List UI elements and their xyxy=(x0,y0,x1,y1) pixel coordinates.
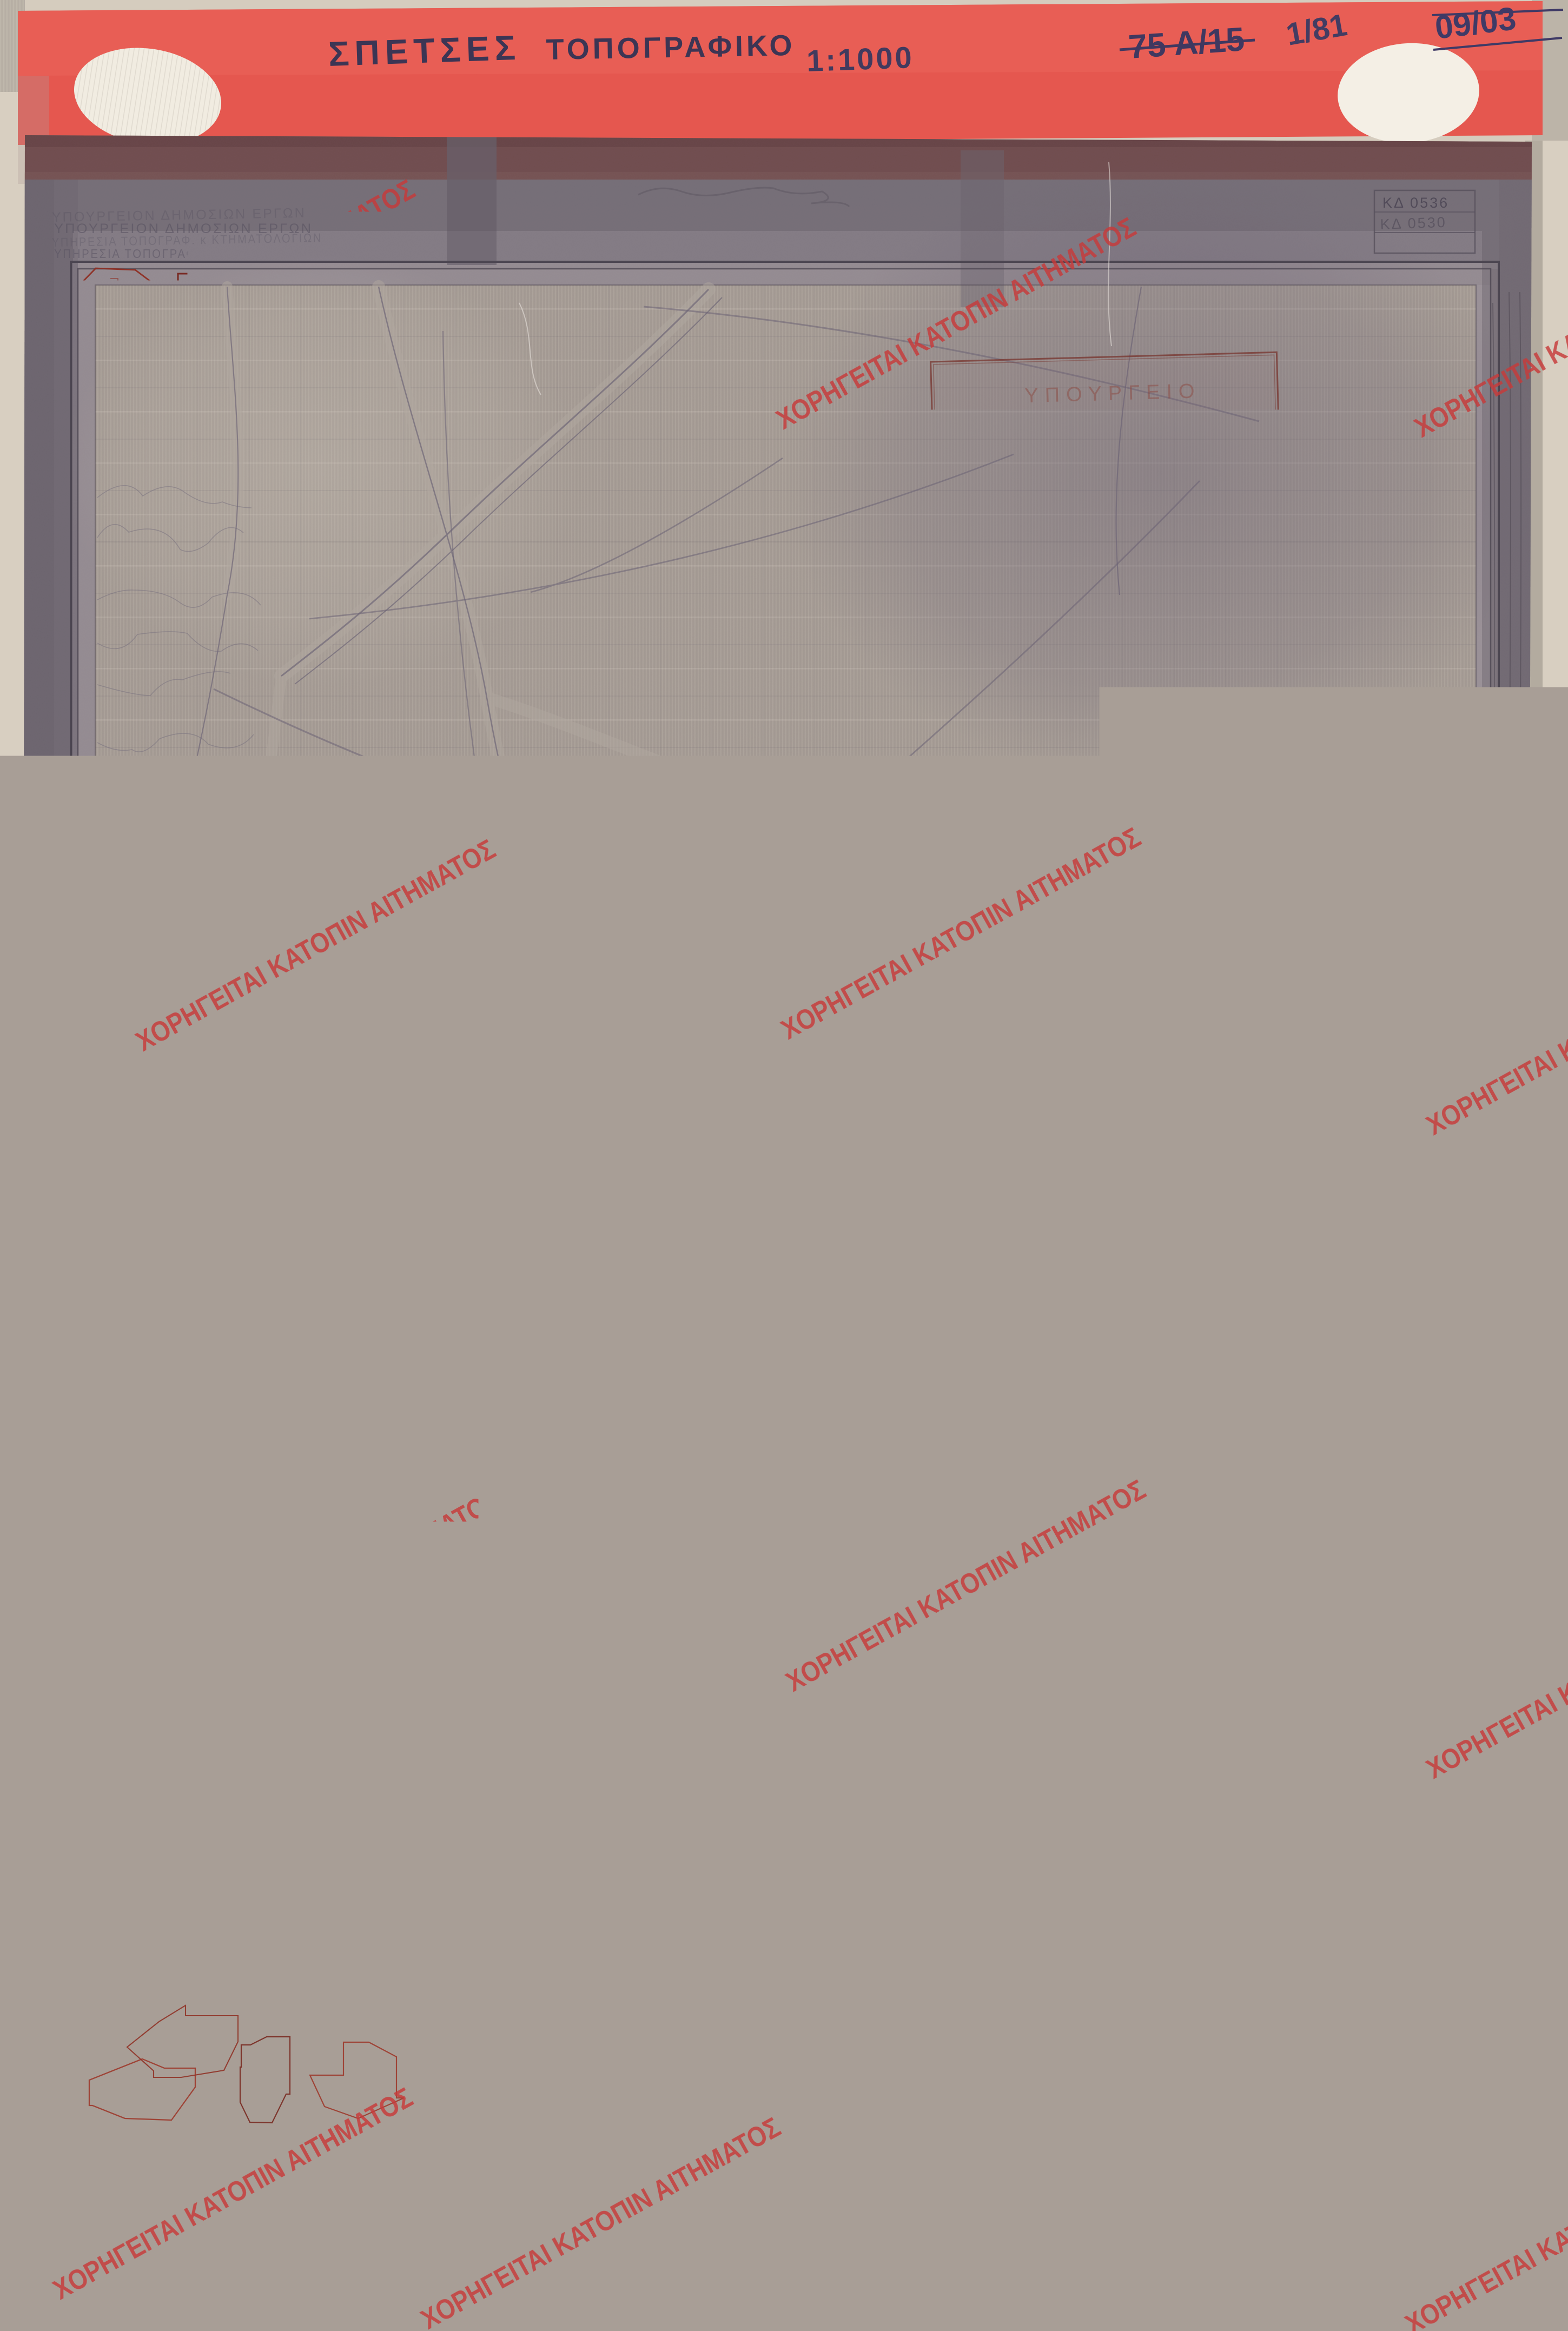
svg-text:ΠΑΝΑΓ.: ΠΑΝΑΓ. xyxy=(1147,1555,1177,1564)
svg-text:281: 281 xyxy=(428,1758,467,1785)
svg-text:285: 285 xyxy=(379,1876,418,1904)
svg-text:1: 1 xyxy=(1200,700,1209,719)
svg-text:295: 295 xyxy=(1390,1716,1430,1744)
svg-text:ΤΟΠΟΓΡΑΦΙΚΟΣ ΧΑΡΤΗΣ: ΤΟΠΟΓΡΑΦΙΚΟΣ ΧΑΡΤΗΣ xyxy=(1160,2164,1512,2188)
svg-text:287: 287 xyxy=(522,2025,562,2054)
svg-text:298: 298 xyxy=(1185,1850,1225,1878)
svg-text:ΑΓ. ΑΝΔΡΕΑΣ: ΑΓ. ΑΝΔΡΕΑΣ xyxy=(108,1190,184,1202)
svg-text:252: 252 xyxy=(420,1195,460,1224)
svg-text:245: 245 xyxy=(447,1084,486,1111)
svg-text:ΑΘΗΝΑ: ΑΘΗΝΑ xyxy=(970,574,1034,592)
svg-text:215: 215 xyxy=(173,389,213,418)
svg-text:228: 228 xyxy=(312,837,352,865)
svg-text:351800: 351800 xyxy=(80,2161,111,2171)
svg-text:288: 288 xyxy=(635,2008,675,2036)
svg-text:222: 222 xyxy=(759,512,800,541)
svg-text:ΑΓ. ΕΛΕΥΘΕΡΙΟΣ: ΑΓ. ΕΛΕΥΘΕΡΙΟΣ xyxy=(1297,2042,1374,2051)
svg-text:241: 241 xyxy=(680,1020,719,1048)
svg-text:301: 301 xyxy=(825,2037,865,2066)
svg-text:253: 253 xyxy=(370,1401,410,1430)
svg-text:αναθεωρη-: αναθεωρη- xyxy=(1134,461,1213,481)
svg-text:273: 273 xyxy=(609,1651,647,1677)
svg-text:296: 296 xyxy=(1387,1811,1428,1840)
svg-text:235: 235 xyxy=(1295,918,1335,947)
svg-text:300: 300 xyxy=(912,1954,951,1982)
svg-text:210: 210 xyxy=(583,311,623,339)
svg-text:180: 180 xyxy=(114,955,153,981)
svg-text:254: 254 xyxy=(559,1317,598,1344)
svg-text:ΤΗΝ: ΤΗΝ xyxy=(984,751,1012,766)
svg-text:ΑΓ.: ΑΓ. xyxy=(841,884,854,895)
svg-text:237: 237 xyxy=(1221,985,1260,1012)
svg-text:303: 303 xyxy=(1092,1964,1132,1992)
svg-text:286: 286 xyxy=(448,1934,487,1962)
svg-text:291: 291 xyxy=(755,1758,795,1786)
svg-text:266: 266 xyxy=(1114,1426,1153,1452)
svg-text:255: 255 xyxy=(698,1182,737,1208)
svg-text:ΕΚΤΕΛΕΣΘ 1972: ΕΚΤΕΛΕΣΘ 1972 xyxy=(1304,2226,1380,2237)
svg-text:Συντεταγμενος συμφωνως: Συντεταγμενος συμφωνως xyxy=(1148,2226,1275,2237)
svg-text:272: 272 xyxy=(779,1626,818,1652)
svg-text:262: 262 xyxy=(1447,1542,1486,1569)
svg-text:214: 214 xyxy=(101,296,140,323)
svg-text:80: 80 xyxy=(1255,675,1273,694)
svg-text:188: 188 xyxy=(109,1754,148,1782)
svg-text:284: 284 xyxy=(342,1923,382,1952)
svg-text:ΚΔ 0536: ΚΔ 0536 xyxy=(1382,195,1449,211)
svg-text:275: 275 xyxy=(298,1543,339,1572)
svg-text:302: 302 xyxy=(978,2035,1017,2061)
svg-text:243: 243 xyxy=(528,1009,567,1037)
svg-text:217: 217 xyxy=(233,498,273,526)
svg-text:227α: 227α xyxy=(244,732,290,759)
svg-text:195: 195 xyxy=(108,1952,148,1980)
svg-text:289: 289 xyxy=(680,1929,720,1958)
svg-text:230: 230 xyxy=(842,855,882,884)
svg-text:259: 259 xyxy=(1342,1231,1381,1259)
svg-text:236: 236 xyxy=(1281,1030,1320,1056)
svg-text:294: 294 xyxy=(1155,1727,1195,1756)
svg-text:244: 244 xyxy=(433,1031,474,1060)
svg-text:292: 292 xyxy=(798,1825,839,1854)
svg-text:160: 160 xyxy=(90,559,129,586)
svg-text:219: 219 xyxy=(558,526,597,552)
svg-text:240: 240 xyxy=(848,1096,886,1122)
svg-text:Συνταξις: Συνταξις xyxy=(1195,2208,1247,2220)
svg-text:ΔΗΜΟΣΙΕΥΘΕΝΤΟΣ ΕΙΣ ΤΟ ΥΠ' ΑΡΙΘ: ΔΗΜΟΣΙΕΥΘΕΝΤΟΣ ΕΙΣ ΤΟ ΥΠ' ΑΡΙΘ. xyxy=(926,706,1163,721)
svg-text:304: 304 xyxy=(1220,1956,1260,1984)
svg-text:248: 248 xyxy=(214,1115,253,1141)
svg-text:Περιοχη ΝΟΜΟΣ: Περιοχη ΝΟΜΟΣ xyxy=(1148,2279,1230,2290)
svg-text:ΧΟΥΣ ΤΗΣ ΕΦΗΜ. ΤΗΣ ΚΥΒΕΡΝΗΣΕΩΣ: ΧΟΥΣ ΤΗΣ ΕΦΗΜ. ΤΗΣ ΚΥΒΕΡΝΗΣΕΩΣ. xyxy=(926,728,1179,743)
svg-text:220: 220 xyxy=(707,478,746,504)
svg-text:233: 233 xyxy=(1288,777,1328,806)
svg-text:220β: 220β xyxy=(632,373,678,399)
svg-text:81: 81 xyxy=(1185,745,1205,765)
svg-text:305: 305 xyxy=(1198,2026,1238,2054)
svg-text:270: 270 xyxy=(889,1566,928,1594)
svg-text:277: 277 xyxy=(141,1609,180,1635)
svg-text:24 Οκτωβριου 19: 24 Οκτωβριου 19 xyxy=(1115,677,1244,696)
svg-text:09/03: 09/03 xyxy=(1404,237,1437,252)
svg-text:279: 279 xyxy=(203,1757,242,1783)
svg-text:ΕΝΕΚΡΙΘΗ ΔΙΑ ΤΟΥ ΑΠΟ: ΕΝΕΚΡΙΘΗ ΔΙΑ ΤΟΥ ΑΠΟ xyxy=(926,683,1094,698)
svg-text:225: 225 xyxy=(340,630,380,658)
svg-text:268: 268 xyxy=(987,1392,1027,1420)
svg-text:218: 218 xyxy=(359,489,398,516)
svg-text:293: 293 xyxy=(908,1785,949,1814)
svg-text:+: + xyxy=(1332,2056,1339,2070)
svg-text:251: 251 xyxy=(81,1264,120,1291)
svg-text:ΣΠΕΤΣΕΣ: ΣΠΕΤΣΕΣ xyxy=(328,28,521,74)
svg-text:211: 211 xyxy=(504,333,542,361)
svg-text:297: 297 xyxy=(1379,1884,1418,1912)
svg-text:ΑΓ. ΜΑΜΑΣ: ΑΓ. ΜΑΜΑΣ xyxy=(1335,598,1396,609)
svg-text:261: 261 xyxy=(1491,1447,1530,1473)
svg-text:263: 263 xyxy=(1346,1587,1387,1616)
svg-text:247: 247 xyxy=(150,1070,189,1098)
svg-text:257: 257 xyxy=(1146,1170,1185,1197)
svg-text:249: 249 xyxy=(259,1181,297,1207)
svg-text:ΦΥΛΛΟΝ ΤΟΥ Α΄ ΤΕΥ-: ΦΥΛΛΟΝ ΤΟΥ Α΄ ΤΕΥ- xyxy=(1221,706,1358,721)
svg-text:299: 299 xyxy=(1038,1850,1077,1878)
svg-text:290: 290 xyxy=(528,1843,567,1869)
svg-text:213: 213 xyxy=(293,312,333,342)
svg-text:226: 226 xyxy=(209,680,248,707)
svg-text:1:1000: 1:1000 xyxy=(806,40,914,78)
svg-text:212: 212 xyxy=(415,389,455,418)
svg-text:150050: 150050 xyxy=(42,2201,51,2228)
svg-text:264: 264 xyxy=(1247,1539,1286,1565)
svg-text:Χρονος Υπαιθρου: Χρονος Υπαιθρου xyxy=(1148,2243,1234,2255)
svg-text:269: 269 xyxy=(798,1477,839,1506)
svg-text:ΘΕΟΔΟΣΙΟΣ: ΘΕΟΔΟΣΙΟΣ xyxy=(833,896,888,906)
svg-text:267α: 267α xyxy=(1249,1288,1295,1314)
svg-text:238: 238 xyxy=(1128,1010,1167,1037)
svg-text:ΕΙΣΟΔΙΑ: ΕΙΣΟΔΙΑ xyxy=(1147,1566,1181,1575)
svg-text:283: 283 xyxy=(235,1960,274,1988)
svg-text:221: 221 xyxy=(680,516,719,543)
svg-text:249: 249 xyxy=(239,1452,277,1480)
svg-text:258: 258 xyxy=(1326,1101,1365,1127)
svg-text:ΑΤΤΙΚΗΣ: ΑΤΤΙΚΗΣ xyxy=(1309,2279,1349,2290)
svg-text:227: 227 xyxy=(221,812,260,839)
svg-text:ΣΠΕΤΣΩΝ: ΣΠΕΤΣΩΝ xyxy=(1309,2262,1355,2273)
svg-text:256: 256 xyxy=(997,1270,1036,1298)
svg-text:282: 282 xyxy=(116,1866,155,1893)
svg-text:ΑΠΡΙΛΙΟΣ 1974: ΑΠΡΙΛΙΟΣ 1974 xyxy=(1309,2244,1379,2255)
svg-text:161: 161 xyxy=(90,723,130,752)
svg-text:ΚΔ 0530: ΚΔ 0530 xyxy=(1380,214,1447,233)
svg-text:280: 280 xyxy=(335,1754,374,1782)
svg-text:274: 274 xyxy=(470,1533,511,1562)
svg-text:267: 267 xyxy=(1253,1359,1292,1387)
svg-text:ΔΙΑΤΑΓΜΑΤΟΣ: ΔΙΑΤΑΓΜΑΤΟΣ xyxy=(1289,683,1380,698)
svg-text:+250: +250 xyxy=(98,1210,142,1234)
svg-text:223: 223 xyxy=(743,721,782,749)
svg-text:278: 278 xyxy=(306,1686,345,1713)
svg-text:ΤΟΠΟΓΡΑΦΙΚΟ: ΤΟΠΟΓΡΑΦΙΚΟ xyxy=(546,29,796,66)
svg-text:ΥΠΑΠΑΝΤΗ: ΥΠΑΠΑΝΤΗ xyxy=(563,1026,622,1036)
svg-text:216: 216 xyxy=(93,472,133,501)
svg-text:Μεθοδος ΓΡΑΦΙΚΗ: Μεθοδος ΓΡΑΦΙΚΗ xyxy=(1148,2261,1240,2273)
svg-text:234: 234 xyxy=(1411,734,1450,761)
svg-text:306: 306 xyxy=(1408,1966,1447,1993)
svg-text:242: 242 xyxy=(572,996,612,1024)
svg-text:229: 229 xyxy=(617,818,657,847)
svg-text:246: 246 xyxy=(299,982,338,1008)
svg-text:224: 224 xyxy=(498,686,537,713)
